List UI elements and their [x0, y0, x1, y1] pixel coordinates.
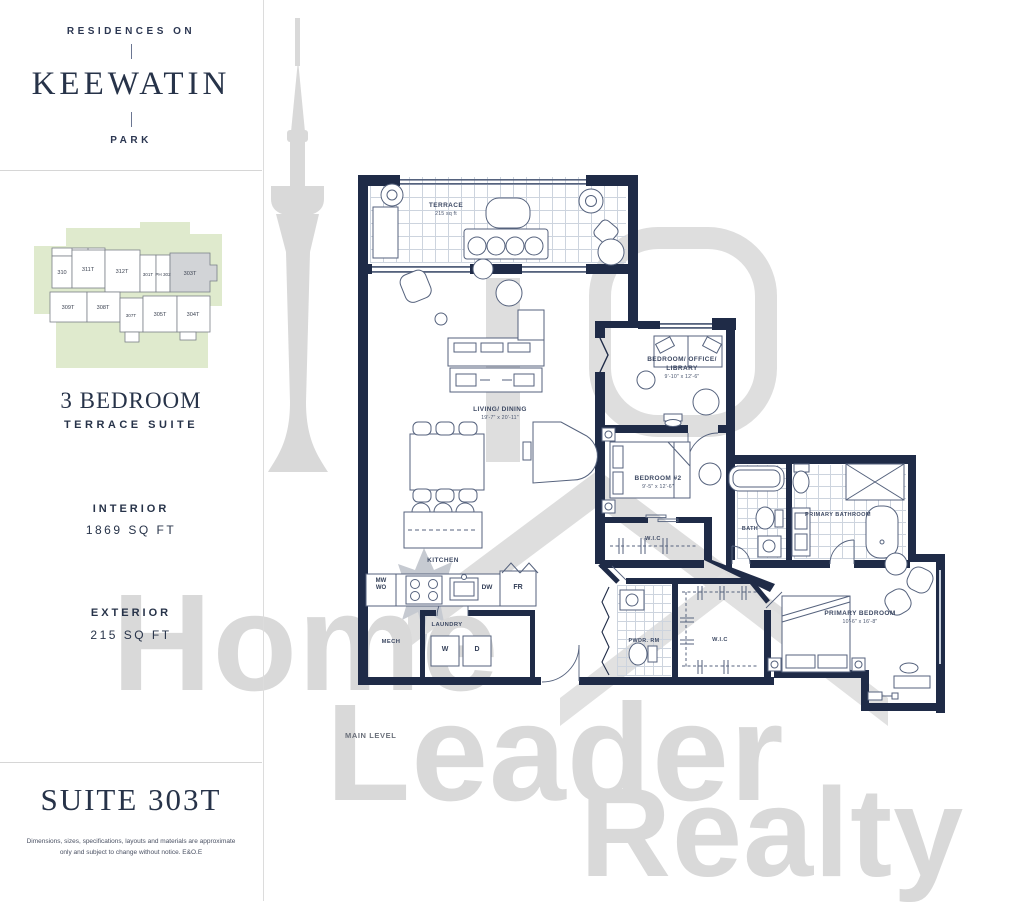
keyplan-label-308t: 308T	[97, 305, 110, 311]
brand-name: KEEWATIN	[0, 66, 262, 103]
room-label-bedroom-office-library: BEDROOM/ OFFICE/ LIBRARY 9'-10" x 12'-6"	[642, 356, 722, 381]
keyplan-label-310: 310	[57, 270, 66, 276]
terrace-lounge-chair	[598, 239, 624, 265]
sofa-chaise	[518, 310, 544, 340]
brand-park: PARK	[0, 135, 262, 146]
nightstand	[602, 500, 615, 513]
room-label-primary-bedroom: PRIMARY BEDROOM 10'-6" x 16'-8"	[800, 610, 920, 626]
room-label-wic-primary: W.I.C	[690, 637, 750, 645]
room-label-mech: MECH	[361, 639, 421, 647]
appliance-label-mw-wo: MW WO	[366, 578, 396, 592]
watermark-realty: Realty	[580, 770, 964, 896]
nightstand	[768, 658, 781, 671]
suite-subtype: TERRACE SUITE	[0, 419, 262, 431]
brand-residences-on: RESIDENCES ON	[0, 26, 262, 37]
keyplan: 310 311T 312T 301T PH 302 303T 309T 308T…	[30, 218, 226, 372]
room-label-laundry: LAUNDRY	[407, 622, 487, 630]
disclaimer: Dimensions, sizes, specifications, layou…	[26, 836, 236, 858]
plant-icon	[579, 189, 603, 213]
suite-type: 3 BEDROOM	[0, 388, 262, 414]
exterior-label: EXTERIOR	[0, 607, 262, 619]
floorplan-flyer: { "brand": { "top": "RESIDENCES ON", "na…	[0, 0, 1030, 901]
dining-chair	[413, 422, 431, 435]
room-label-bath: BATH	[730, 526, 770, 533]
terrace-screen	[373, 207, 398, 258]
room-label-powder-room: PWDR. RM	[614, 638, 674, 645]
suite-title: SUITE 303T	[0, 782, 262, 818]
keyplan-tab	[180, 332, 196, 340]
brand-divider-top	[131, 44, 132, 59]
keyplan-label-309t: 309T	[62, 305, 75, 311]
grand-piano	[533, 422, 597, 483]
armchair	[398, 268, 434, 305]
sidebar-divider-top	[0, 170, 262, 171]
appliance-label-dw: DW	[473, 584, 501, 591]
piano-bench	[523, 442, 531, 460]
keyplan-label-303t: 303T	[184, 271, 197, 277]
dining-chair	[459, 489, 477, 502]
toilet-tank	[648, 646, 657, 662]
room-label-wic2: W.I.C	[623, 536, 683, 544]
room-label-terrace: TERRACE 215 sq ft	[396, 202, 496, 218]
island-stools	[412, 503, 474, 512]
dining-chair	[436, 489, 454, 502]
plant-icon	[473, 259, 493, 279]
keyplan-label-307t: 307T	[126, 313, 137, 318]
brand-divider-bottom	[131, 112, 132, 127]
round-table	[885, 553, 907, 575]
round-table	[496, 280, 522, 306]
floorplan-drawing	[358, 172, 950, 764]
desk-stool	[900, 663, 918, 673]
keyplan-label-312t: 312T	[116, 269, 129, 275]
keyplan-tab	[125, 332, 139, 342]
toilet	[793, 471, 809, 493]
dining-chair	[436, 422, 454, 435]
sidebar: RESIDENCES ON KEEWATIN PARK 310 311T	[0, 0, 264, 901]
appliance-label-dryer: D	[463, 646, 491, 654]
room-label-living-dining: LIVING/ DINING 19'-7" x 20'-11"	[440, 406, 560, 422]
desk	[894, 676, 930, 688]
nightstand	[852, 658, 865, 671]
appliance-label-fr: FR	[500, 584, 536, 592]
floorplan: TERRACE 215 sq ft LIVING/ DINING 19'-7" …	[358, 172, 950, 764]
dining-table	[410, 434, 484, 490]
round-chair	[693, 389, 719, 415]
toilet-tank	[775, 510, 783, 527]
room-label-primary-bathroom: PRIMARY BATHROOM	[796, 512, 880, 520]
nightstand	[602, 428, 615, 441]
toilet	[629, 643, 647, 665]
armchair	[904, 564, 936, 596]
keyplan-label-ph302: PH 302	[155, 272, 171, 277]
dining-chair	[459, 422, 477, 435]
interior-label: INTERIOR	[0, 503, 262, 515]
main-level-label: MAIN LEVEL	[345, 731, 396, 740]
keyplan-label-305t: 305T	[154, 312, 167, 318]
exterior-value: 215 SQ FT	[0, 628, 262, 642]
powder-vanity	[620, 590, 644, 610]
floor-lamp	[435, 313, 447, 325]
keyplan-label-301t: 301T	[143, 272, 154, 277]
cn-tower-watermark	[268, 18, 328, 472]
room-label-kitchen: KITCHEN	[403, 557, 483, 566]
cooktop	[406, 576, 442, 604]
interior-value: 1869 SQ FT	[0, 523, 262, 537]
bath-vanity	[758, 536, 781, 557]
sidebar-divider-bottom	[0, 762, 262, 763]
keyplan-label-304t: 304T	[187, 312, 200, 318]
bench	[868, 692, 882, 700]
appliance-label-washer: W	[431, 646, 459, 654]
dining-chair	[413, 489, 431, 502]
keyplan-label-311t: 311T	[82, 267, 95, 273]
room-label-bedroom2: BEDROOM #2 9'-5" x 12'-6"	[608, 475, 708, 491]
